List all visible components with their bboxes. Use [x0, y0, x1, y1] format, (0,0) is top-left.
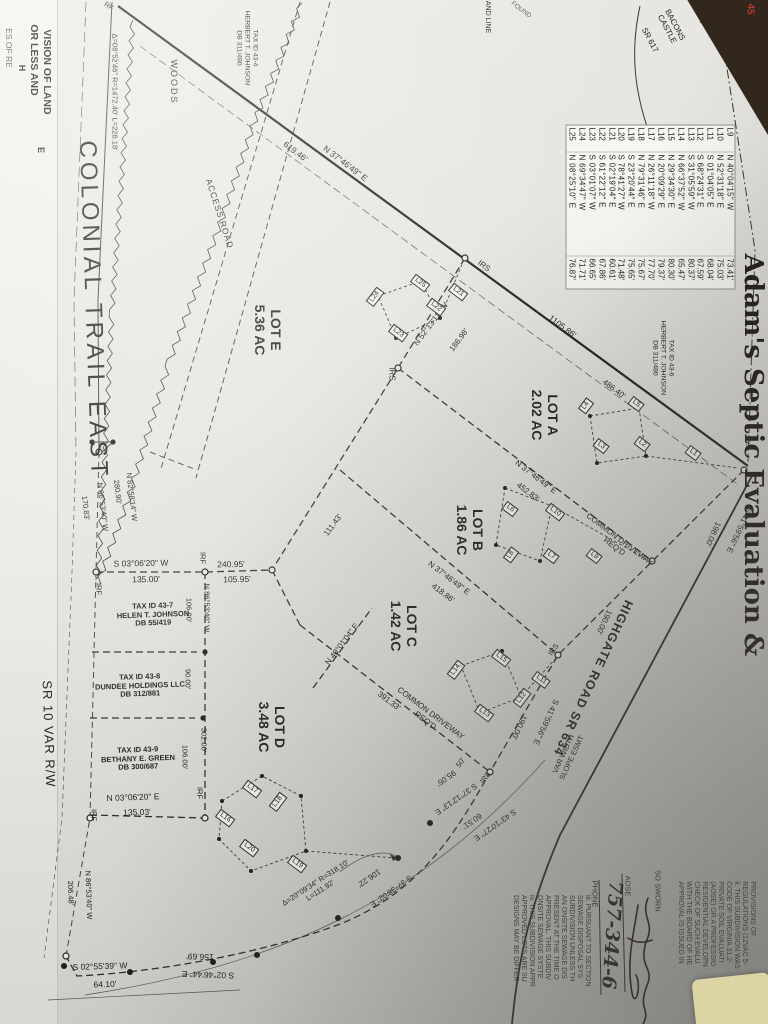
notes-block-ii-line-7: CHECK OF SUCH EVALU [692, 881, 700, 969]
line-distance: 77.70' [646, 256, 656, 289]
bearing-8653-c: N 86°53'40" W [83, 870, 93, 919]
line-table-row: L16N 20°09'29" E79.37' [656, 126, 666, 289]
lot-b-label-line-0: LOT B [470, 505, 486, 556]
tax-parcel-43-6-line-0: TAX ID 43-6 [667, 321, 675, 395]
notes-block-iii-line-0: iii. PURSUANT TO SECTION [583, 895, 591, 987]
lot-b-label: LOT B1.86 AC [454, 505, 486, 556]
line-number: L16 [656, 126, 666, 153]
notes-block-iii-line-5: APPROVAL. THIS SUBDIV [543, 895, 551, 987]
notes-block-iii-line-7: iv. THIS SUBDIVISION APPR [527, 895, 535, 987]
marker-irf-1: IRF [198, 552, 207, 564]
line-table-row: L10N 52°31'18" E75.03' [715, 126, 725, 289]
lot-d-label-line-0: LOT D [272, 702, 288, 753]
dim-302: 302.00' [199, 728, 208, 752]
line-table-row: L11S 01°04'05" E68.04' [705, 126, 715, 289]
line-bearing: N 79°31'46" E [636, 152, 646, 256]
notes-block-iii-line-1: SEWAGE DISPOSAL SYS [575, 895, 583, 987]
notes-block-ii-line-0: PROVISIONS OF [748, 881, 756, 969]
marker-irf-3: IRF [195, 787, 204, 799]
line-number: L24 [577, 126, 587, 153]
dim-156: 156.69' [186, 951, 214, 962]
line-table-row: L25N 08°25'10" E76.87' [567, 126, 577, 289]
dim-90: 90.00' [183, 669, 192, 689]
line-number: L25 [567, 126, 577, 153]
red-annotation-45: 45 [744, 3, 756, 15]
line-table-row: L19S 23°20'44" E75.65' [626, 126, 636, 289]
line-distance: 75.65' [626, 256, 636, 289]
lot-e-label-line-1: 5.36 AC [252, 305, 268, 356]
line-bearing: N 20°09'29" E [656, 152, 666, 256]
line-distance: 68.04' [705, 256, 715, 289]
line-distance: 65.47' [675, 256, 685, 289]
lot-e-label: LOT E5.36 AC [252, 305, 284, 356]
notes-block-ii-line-3: CODE OF VIRGINIA 31.2- [724, 881, 732, 969]
line-distance: 80.30' [665, 256, 675, 289]
line-distance: 80.37' [685, 256, 695, 289]
bearing-0306-w: S 03°06'20" W [114, 559, 169, 570]
tax-parcel-43-9: TAX ID 43-9BETHANY E. GREENDB 300/687 [101, 745, 176, 773]
notes-block-iii-line-3: AN ONSITE SEWAGE DIS [559, 895, 567, 987]
line-distance: 75.67' [636, 256, 646, 289]
tax-parcel-43-4-line-0: TAX ID 43-4 [251, 11, 259, 85]
lot-a-label: LOT A2.02 AC [529, 390, 561, 441]
dim-64: 64.10' [93, 980, 116, 991]
line-bearing: S 61°22'12" E [596, 152, 606, 256]
line-number: L11 [705, 126, 715, 153]
notes-block-ii-line-6: RESIDENTIAL DEVELOPN [700, 881, 708, 969]
line-distance: 76.87' [567, 256, 577, 289]
line-bearing: S 78°41'27" W [616, 152, 626, 256]
signature-scribble [628, 898, 652, 1024]
line-number: L19 [626, 126, 636, 153]
line-bearing: N 66°37'52" W [675, 152, 685, 256]
notes-block-iii-line-8: APPROVED LOTS ARE SU [519, 895, 527, 987]
line-bearing: N 69°34'47" W [577, 152, 587, 256]
line-number: L12 [695, 126, 705, 153]
sticky-note [691, 972, 768, 1024]
line-bearing: N 08°25'10" E [567, 152, 577, 256]
line-table-row: L17N 26°11'18" W77.70' [646, 126, 656, 289]
line-bearing: S 23°20'44" E [626, 152, 636, 256]
bearing-0255: S 02°55'39" W [72, 961, 127, 973]
notes-block-iii: iii. PURSUANT TO SECTIONSEWAGE DISPOSAL … [511, 895, 591, 987]
line-table-row: L20S 78°41'27" W71.48' [616, 126, 626, 289]
line-distance: 73.41' [725, 256, 735, 289]
left-ed极ge-fragment-4: H [17, 65, 27, 72]
line-distance: 71.71' [577, 256, 587, 289]
line-table-row: L13S 31°05'59" W80.37' [685, 126, 695, 289]
bearing-8653-b: N 86°53'40" W [202, 584, 211, 633]
notes-block-iii-line-4: PRESENT AT THE TIME O [551, 895, 559, 987]
lot-c-label-line-0: LOT C [404, 601, 420, 652]
notes-block-ii-line-9: APPROVAL IS ISSUED IN [676, 881, 684, 969]
line-number: L9 [725, 126, 735, 153]
fragment-and-line: AND LINE [483, 1, 491, 33]
line-number: L15 [665, 126, 675, 153]
tax-parcel-43-7: TAX ID 43-7HELEN T. JOHNSONDB 55/419 [116, 601, 189, 629]
tax-parcel-43-6-line-1: HERBERT T. JOHNSON [659, 321, 667, 395]
dim-280: 280.90' [111, 479, 123, 504]
line-table-body: L9N 40°04'15" W73.41'L10N 52°31'18" E75.… [567, 126, 735, 289]
line-table-row: L12S 68°24'31" E67.59' [695, 126, 705, 289]
lot-b-label-line-1: 1.86 AC [454, 505, 470, 556]
line-table-row: L24N 69°34'47" W71.71' [577, 126, 587, 289]
line-table: L9N 40°04'15" W73.41'L10N 52°31'18" E75.… [566, 125, 736, 290]
lot-d-label: LOT D3.48 AC [256, 702, 288, 753]
line-table-row: L15N 29°34'30" E80.30' [665, 126, 675, 289]
road-name-sr-10: SR 10 VAR R/W [39, 680, 58, 788]
plat-paper: VISION OF LANDOR LESS ANDEHES OF RERFΔ=0… [0, 0, 768, 1024]
tax-parcel-43-4: TAX ID 43-4HERBERT T. JOHNSONDB 311/480 [235, 11, 258, 85]
line-bearing: S 02°19'04" E [606, 152, 616, 256]
line-table-row: L22S 61°22'12" E67.86' [596, 126, 606, 289]
lot-d-label-line-1: 3.48 AC [256, 702, 272, 753]
line-number: L20 [616, 126, 626, 153]
tax-parcel-43-6-line-2: DB 311/480 [651, 321, 659, 395]
notes-block-ii-line-5: (AOSE) OR A PROFESSIO [708, 881, 716, 969]
tax-parcel-43-6: TAX ID 43-6HERBERT T. JOHNSONDB 311/480 [651, 321, 674, 395]
woods-label: WOODS [169, 60, 179, 105]
line-table-row: L21S 02°19'04" E60.61' [606, 126, 616, 289]
notes-block-iii-line-9: DESIGNS MAY BE DIFFER [511, 895, 519, 987]
line-table-row: L9N 40°04'15" W73.41' [725, 126, 735, 289]
marker-irs-1: IRS [387, 367, 396, 380]
notes-block-iii-line-6: ONSITE SEWAGE SYSTE [535, 895, 543, 987]
line-distance: 75.03' [715, 256, 725, 289]
line-number: L13 [685, 126, 695, 153]
line-distance: 67.59' [695, 256, 705, 289]
line-number: L14 [675, 126, 685, 153]
bearing-0246: S 02°46'44" E [182, 968, 235, 980]
dim-135b: 135.03' [123, 808, 151, 819]
line-number: L22 [596, 126, 606, 153]
affidavit-so-sworn: SO SWORN [653, 870, 662, 912]
left-edge-fragment-5: ES OF RE [3, 28, 13, 68]
notes-block-ii-line-4: PRIVATE SOIL EVALUATI [716, 881, 724, 969]
line-number: L17 [646, 126, 656, 153]
line-bearing: N 40°04'15" W [725, 152, 735, 256]
line-bearing: N 29°34'30" E [665, 152, 675, 256]
line-table-row: L14N 66°37'52" W65.47' [675, 126, 685, 289]
marker-irf-2: IRF [94, 583, 103, 595]
line-table-row: L18N 79°31'46" E75.67' [636, 126, 646, 289]
line-number: L18 [636, 126, 646, 153]
line-number: L10 [715, 126, 725, 153]
lot-a-label-line-1: 2.02 AC [529, 390, 545, 441]
line-bearing: S 03°01'07" W [586, 152, 596, 256]
dim-240: 240.95' [217, 560, 245, 570]
notes-block-iii-line-2: SUBDIVISION UNLESS TH [567, 895, 575, 987]
lot-c-label-line-1: 1.42 AC [388, 601, 404, 652]
dim-106b: 106.00' [180, 745, 189, 769]
photo-of-plat: VISION OF LANDOR LESS ANDEHES OF RERFΔ=0… [0, 0, 768, 1024]
line-bearing: S 68°24'31" E [695, 152, 705, 256]
lot-a-label-line-0: LOT A [545, 390, 561, 441]
dim-206: 206.48' [65, 881, 74, 906]
left-edge-fragment-1: VISION OF LAND [41, 29, 53, 114]
bearing-0306-e: N 03°06'20" E [106, 792, 159, 804]
line-table-row: L23S 03°01'07" W66.65' [586, 126, 596, 289]
line-distance: 79.37' [656, 256, 666, 289]
tax-parcel-43-4-line-1: HERBERT T. JOHNSON [243, 11, 251, 85]
dim-106a: 106.00' [184, 598, 193, 622]
notes-block-ii-line-2: ii. THIS SUBDIVISION WAS [732, 881, 740, 969]
left-edge-fragment-2: OR LESS AND [28, 24, 40, 95]
line-bearing: S 31°05'59" W [685, 152, 695, 256]
notes-block-ii-line-8: WITH THE BOARD OF HE [684, 881, 692, 969]
notes-block-ii: PROVISIONS OFREGULATIONS (12VAC 5-ii. TH… [676, 881, 756, 969]
dim-105: 105.95' [223, 575, 251, 585]
dim-170: 170.83' [79, 495, 91, 520]
tax-parcel-43-4-line-2: DB 311/480 [235, 11, 243, 85]
lot-c-label: LOT C1.42 AC [388, 601, 420, 652]
adams-septic-overlay-text: Adam's Septic Evaluation & [737, 254, 767, 657]
dim-135a: 135.00' [132, 575, 160, 585]
tax-parcel-43-8: TAX ID 43-8DUNDEE HOLDINGS LLCDB 312/881 [95, 671, 186, 700]
marker-ipf-top: IPF [718, 15, 730, 28]
line-distance: 71.48' [616, 256, 626, 289]
marker-irf-4: IRF [89, 809, 98, 821]
line-distance: 66.65' [586, 256, 596, 289]
line-number: L21 [606, 126, 616, 153]
curve-data-top: Δ=08°52'46" R=1472.40' L=228.18' [110, 34, 119, 151]
left-edge-fragment-3: E [36, 147, 46, 153]
line-distance: 60.61' [606, 256, 616, 289]
line-number: L23 [586, 126, 596, 153]
lot-e-label-line-0: LOT E [268, 305, 284, 356]
notes-block-ii-line-1: REGULATIONS (12VAC 5- [740, 881, 748, 969]
line-distance: 67.86' [596, 256, 606, 289]
line-bearing: N 26°11'18" W [646, 152, 656, 256]
line-bearing: S 01°04'05" E [705, 152, 715, 256]
line-bearing: N 52°31'18" E [715, 152, 725, 256]
